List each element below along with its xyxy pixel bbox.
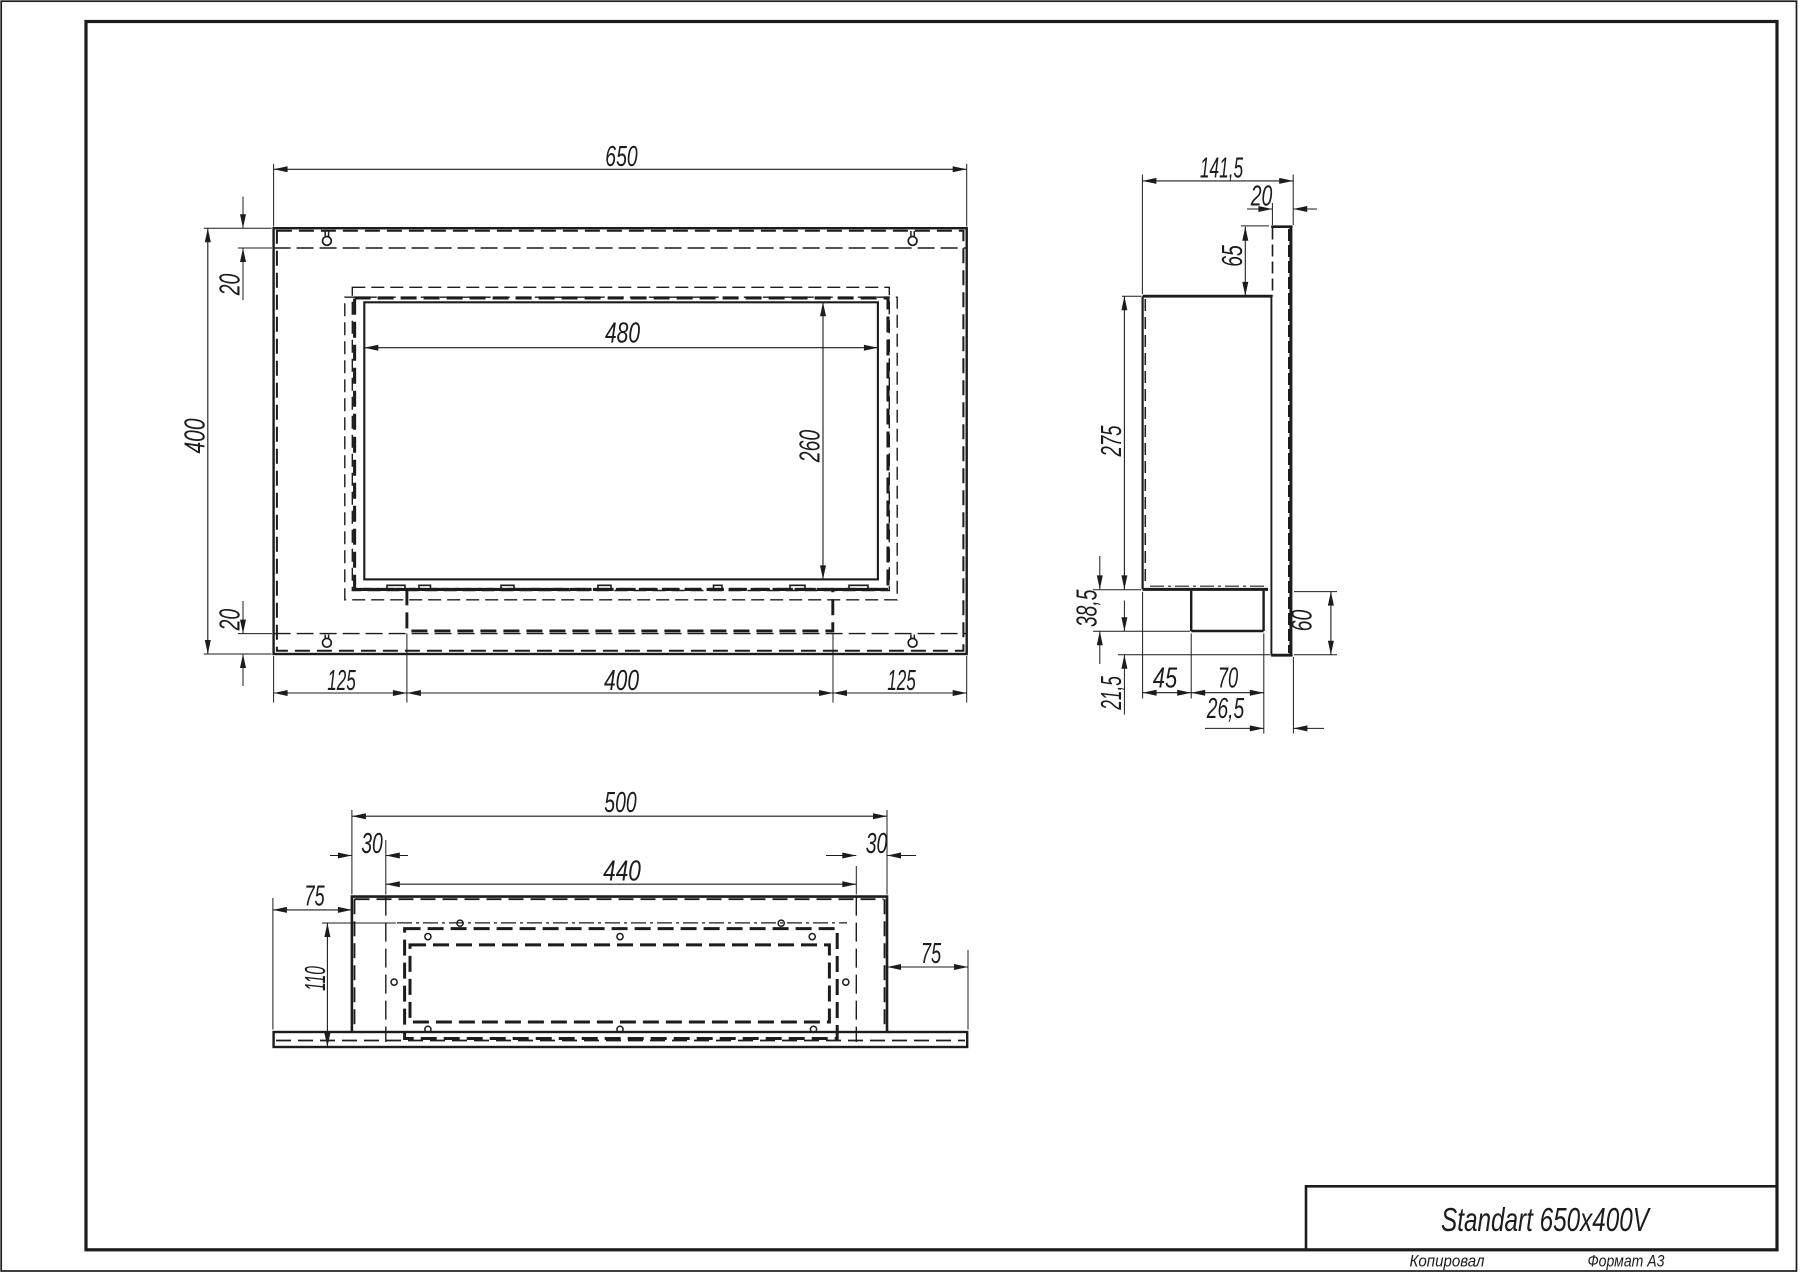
svg-text:75: 75 <box>304 881 325 913</box>
svg-text:440: 440 <box>603 856 641 888</box>
svg-text:75: 75 <box>921 938 942 970</box>
svg-text:21,5: 21,5 <box>1096 676 1128 711</box>
svg-text:60: 60 <box>1287 610 1319 632</box>
svg-text:260: 260 <box>795 430 827 463</box>
svg-text:500: 500 <box>604 787 636 819</box>
svg-text:125: 125 <box>327 665 356 697</box>
svg-text:Standart 650x400V: Standart 650x400V <box>1441 1201 1651 1238</box>
svg-text:20: 20 <box>215 274 247 296</box>
svg-text:38,5: 38,5 <box>1072 589 1104 627</box>
svg-text:141,5: 141,5 <box>1200 152 1244 184</box>
svg-text:275: 275 <box>1096 425 1128 457</box>
svg-text:400: 400 <box>604 665 639 697</box>
svg-text:650: 650 <box>605 141 637 173</box>
svg-text:65: 65 <box>1217 245 1249 267</box>
svg-text:30: 30 <box>866 828 888 860</box>
svg-text:125: 125 <box>887 665 916 697</box>
svg-text:45: 45 <box>1153 663 1178 695</box>
svg-text:110: 110 <box>300 966 332 991</box>
svg-text:30: 30 <box>361 828 383 860</box>
svg-text:400: 400 <box>180 418 212 453</box>
svg-text:Формат А3: Формат А3 <box>1588 1253 1666 1271</box>
svg-text:Копировал: Копировал <box>1410 1253 1485 1271</box>
svg-text:480: 480 <box>605 317 640 349</box>
svg-text:26,5: 26,5 <box>1206 693 1245 725</box>
svg-text:20: 20 <box>215 609 247 631</box>
svg-text:70: 70 <box>1218 663 1238 695</box>
svg-text:20: 20 <box>1250 181 1272 213</box>
